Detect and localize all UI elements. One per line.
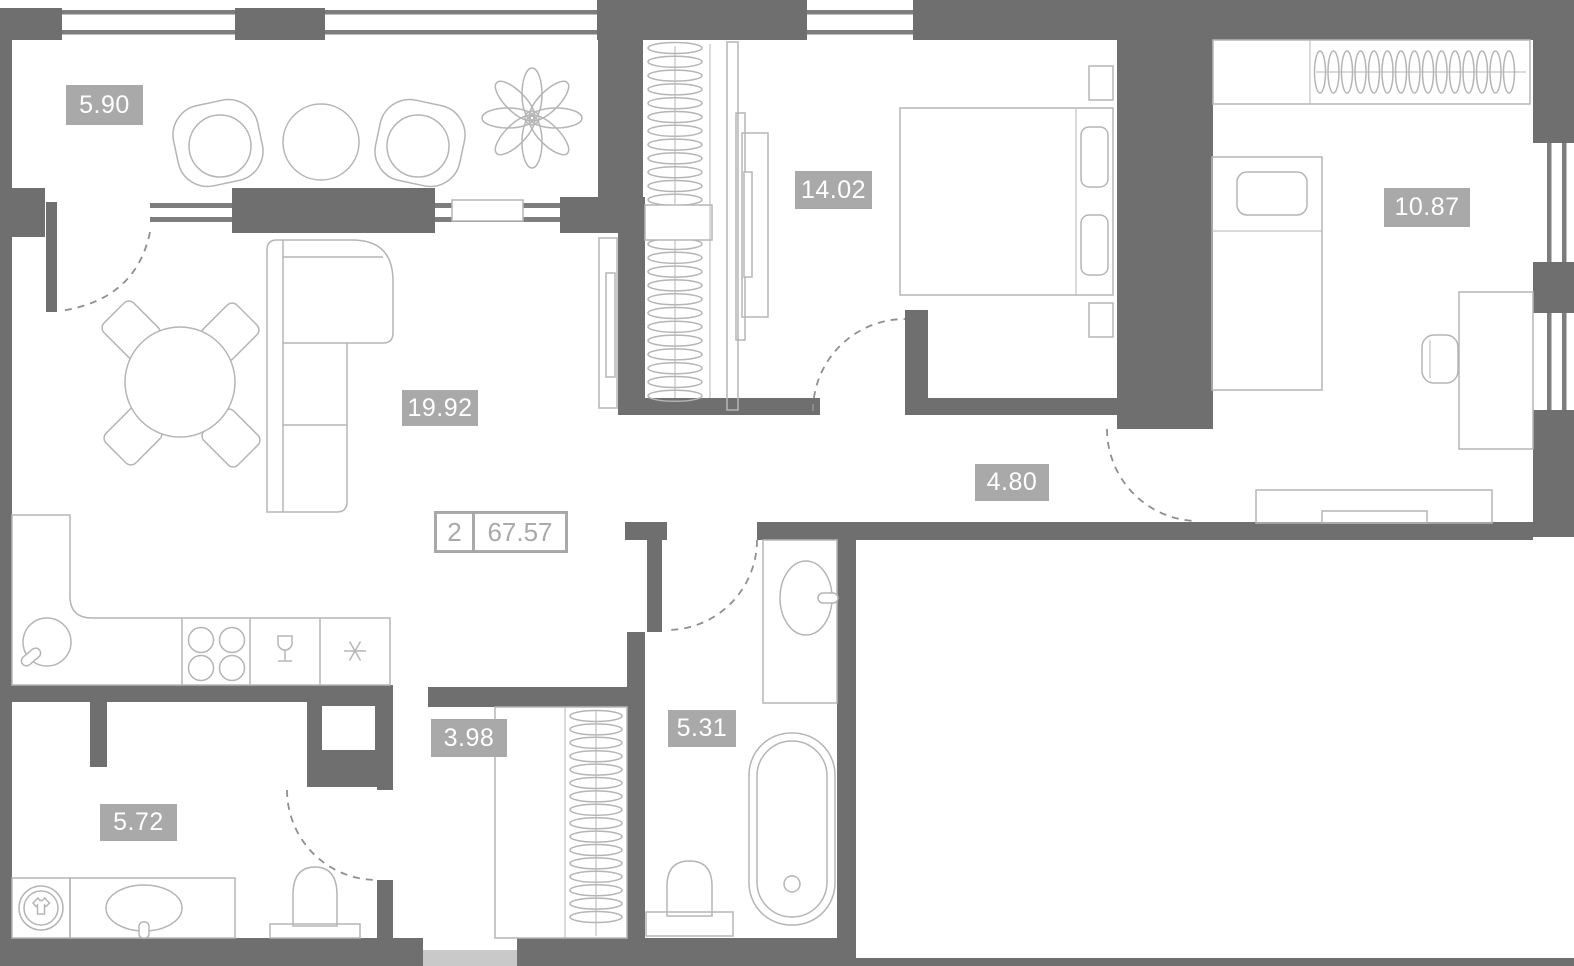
bedroom-door-arc — [813, 319, 905, 411]
hall-wardrobe — [495, 707, 627, 938]
rooms-count: 2 — [437, 514, 472, 550]
bedroom-tv-unit — [742, 133, 768, 317]
fridge-snowflake-icon — [344, 642, 366, 661]
tv — [744, 172, 752, 277]
washing-machine — [12, 878, 70, 938]
bathroom-door-arc — [667, 540, 757, 630]
desk — [1422, 292, 1533, 449]
total-area: 67.57 — [472, 514, 565, 550]
tap — [818, 593, 838, 603]
tshirt-icon — [33, 898, 50, 914]
balcony-table — [283, 104, 359, 180]
bedroom2-door-arc — [1107, 429, 1196, 521]
low-console — [1256, 490, 1492, 523]
bathroom2-door-arc — [287, 790, 377, 880]
area-label-living: 19.92 — [402, 390, 478, 426]
bedroom2-wardrobe — [1213, 40, 1530, 104]
dining-set — [99, 298, 263, 470]
kitchen-counter — [12, 515, 390, 685]
balcony-door-arc — [60, 232, 150, 311]
tap — [139, 922, 149, 938]
area-label-bathroom2: 5.72 — [100, 804, 177, 841]
area-label-bedroom: 14.02 — [795, 171, 872, 209]
nightstand — [1089, 66, 1113, 100]
floor-plan: 5.90 19.92 14.02 10.87 4.80 3.98 5.31 5.… — [0, 0, 1574, 966]
tv — [606, 273, 615, 377]
area-label-balcony: 5.90 — [66, 85, 143, 125]
nightstand — [1089, 303, 1113, 337]
stove-icon — [189, 628, 245, 681]
window-sill — [452, 200, 523, 221]
entry-threshold — [423, 950, 517, 966]
bathroom-vanity — [763, 540, 838, 703]
dining-table — [125, 327, 235, 437]
plant — [482, 68, 582, 168]
bathtub — [749, 733, 835, 925]
balcony-chair-right — [369, 94, 470, 192]
vanity-2 — [70, 878, 235, 938]
balcony-chair-left — [167, 94, 268, 192]
walls — [0, 0, 1574, 966]
area-label-corridor: 4.80 — [975, 464, 1049, 501]
single-bed — [1212, 157, 1322, 390]
dishwasher-glass-icon — [278, 636, 292, 661]
double-bed — [900, 108, 1113, 295]
floor-plan-drawing — [0, 0, 1574, 966]
kitchen-sink — [19, 618, 71, 668]
media-console — [599, 238, 617, 408]
area-label-entry: 3.98 — [431, 719, 507, 757]
drain — [784, 876, 800, 892]
apartment-summary-badge: 2 67.57 — [434, 511, 568, 553]
area-label-bathroom: 5.31 — [668, 710, 736, 747]
toilet — [646, 861, 733, 936]
bedroom-wardrobe — [645, 42, 745, 410]
sofa — [267, 240, 393, 512]
desk-chair — [1422, 335, 1458, 383]
area-label-bedroom2: 10.87 — [1384, 188, 1470, 227]
toilet-2 — [270, 867, 360, 938]
